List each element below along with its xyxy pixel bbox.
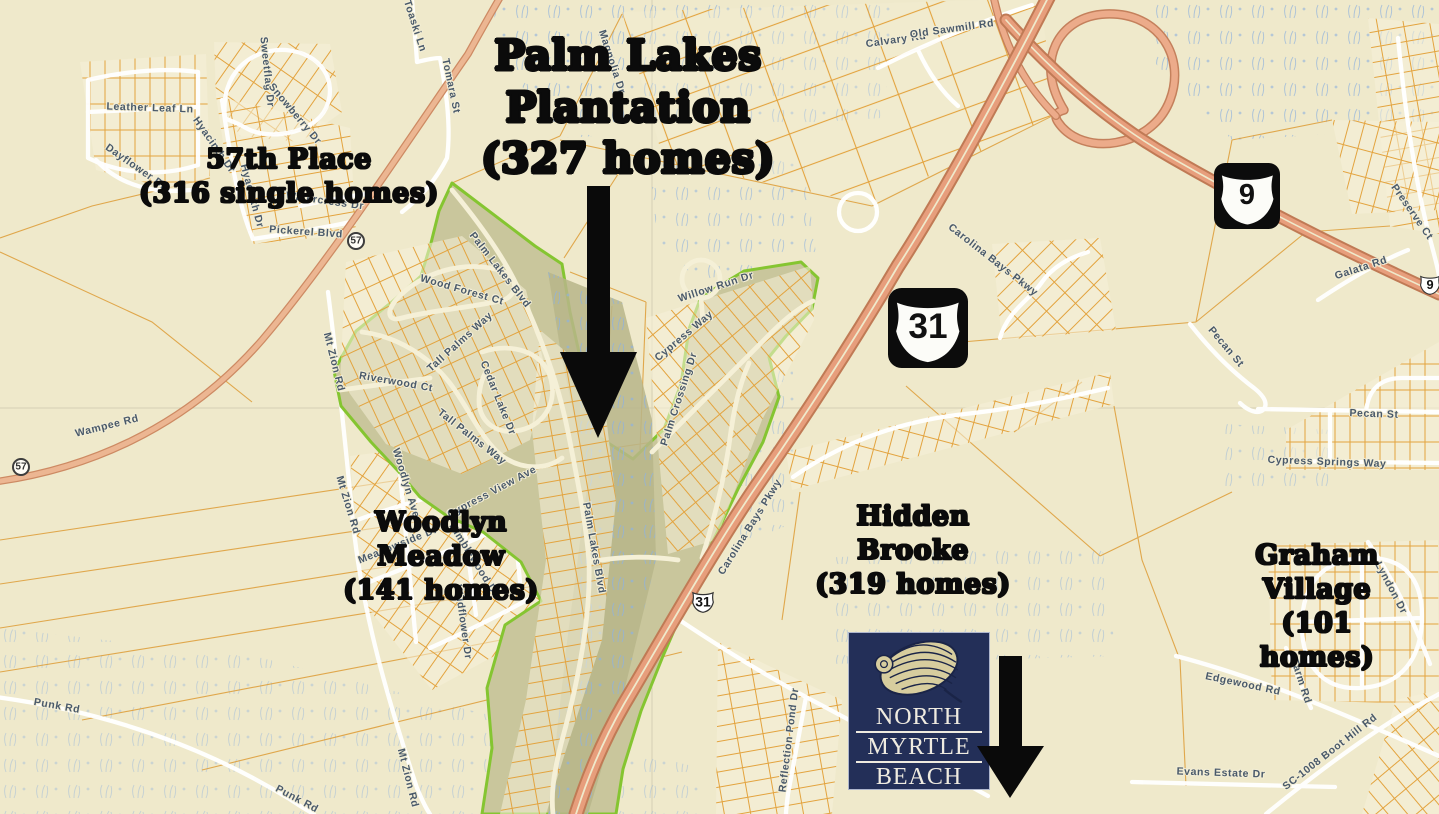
logo-divider — [856, 761, 982, 763]
logo-word-beach: BEACH — [849, 765, 989, 789]
map-annotation-woodlyn-meadow: WoodlynMeadow(141 homes) — [343, 506, 538, 608]
route-number: 57 — [349, 236, 363, 247]
map-annotation-hidden-brooke: HiddenBrooke(319 homes) — [815, 500, 1010, 602]
map-annotation-graham-village: GrahamVillage(101 homes) — [1255, 539, 1378, 675]
north-myrtle-beach-logo: NORTH MYRTLE BEACH — [848, 632, 990, 790]
circle-route-shield-route-57-a: 57 — [347, 232, 365, 250]
mini-route-shield-sc-9-marker: 9 — [1419, 273, 1439, 295]
map-annotation-palm-lakes-plantation: Palm LakesPlantation(327 homes) — [481, 31, 775, 186]
route-number: 57 — [14, 462, 28, 473]
route-number: 31 — [888, 307, 968, 347]
street-label: Pecan St — [1349, 407, 1399, 421]
map-annotation-57th-place: 57th Place(316 single homes) — [139, 143, 439, 211]
logo-word-north: NORTH — [849, 705, 989, 729]
route-number: 9 — [1419, 277, 1439, 292]
us-route-shield-us-31: 31 — [888, 288, 968, 368]
logo-word-myrtle: MYRTLE — [849, 735, 989, 759]
seashell-icon — [849, 633, 989, 705]
route-number: 9 — [1214, 179, 1280, 212]
circle-route-shield-route-57-b: 57 — [12, 458, 30, 476]
logo-divider — [856, 731, 982, 733]
us-route-shield-us-9: 9 — [1214, 163, 1280, 229]
route-number: 31 — [691, 594, 715, 610]
map-screenshot: Toaski LnTomara StMagnolia DrCalvary RdO… — [0, 0, 1439, 814]
mini-route-shield-sc-31-marker: 31 — [691, 589, 715, 613]
